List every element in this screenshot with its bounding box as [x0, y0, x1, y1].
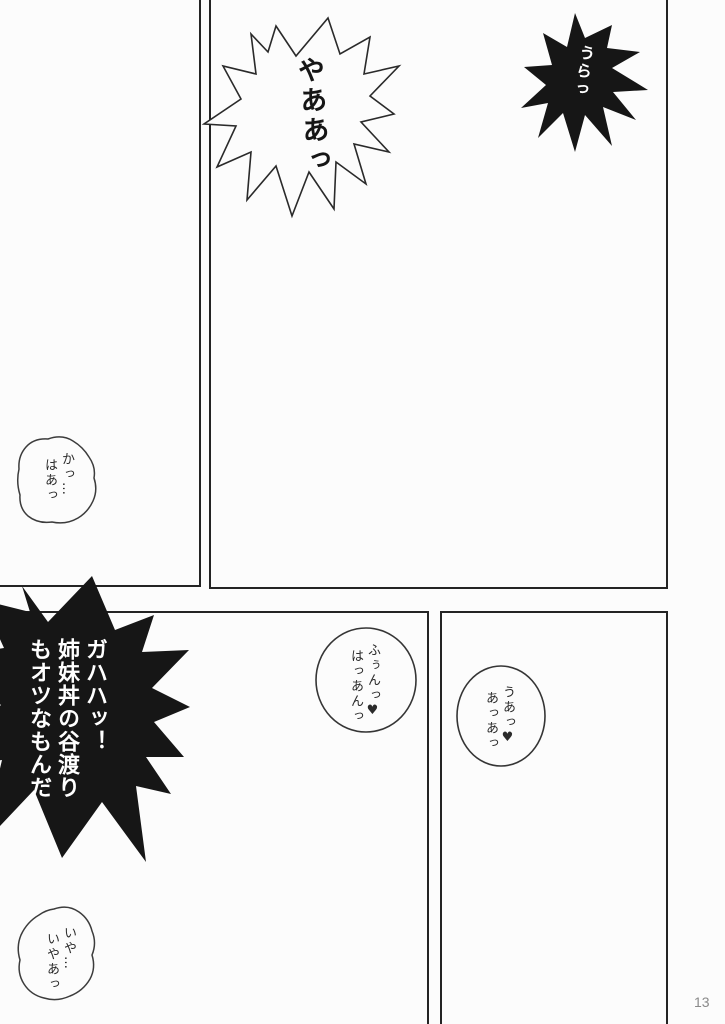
speech-line: やああっ	[288, 55, 335, 169]
cloud-left-text: かっ… はあっ	[41, 452, 75, 522]
circle-right-text: うあっ♥ あっあっ	[482, 685, 516, 765]
speech-line: はあっ	[41, 452, 58, 522]
circle-middle-text: ふぅんっ♥ はっあんっ	[347, 643, 381, 723]
burst-top-text: やああっ	[288, 55, 335, 169]
speech-line: かっ…	[58, 452, 75, 522]
speech-line: いやあっ	[43, 926, 60, 998]
burst-bottom-left-text: ガハハッ！ 姉妹丼の谷渡り もオツなもんだ	[24, 638, 108, 806]
speech-line: ふぅんっ♥	[364, 643, 381, 723]
speech-line: いや…	[60, 926, 77, 998]
speech-line: もオツなもんだ	[24, 638, 52, 806]
speech-line: うあっ♥	[499, 685, 516, 765]
speech-line: あっあっ	[482, 685, 499, 765]
speech-line: はっあんっ	[347, 643, 364, 723]
page-number: 13	[694, 994, 710, 1010]
manga-page: やああっ うらっ ガハハッ！ 姉妹丼の谷渡り もオツなもんだ かっ… はあっ ふ…	[0, 0, 725, 1024]
cloud-bottom-left-text: いや… いやあっ	[43, 926, 77, 998]
speech-shape-layer	[0, 0, 725, 1024]
speech-line: ガハハッ！	[80, 638, 108, 806]
speech-line: 姉妹丼の谷渡り	[52, 638, 80, 806]
